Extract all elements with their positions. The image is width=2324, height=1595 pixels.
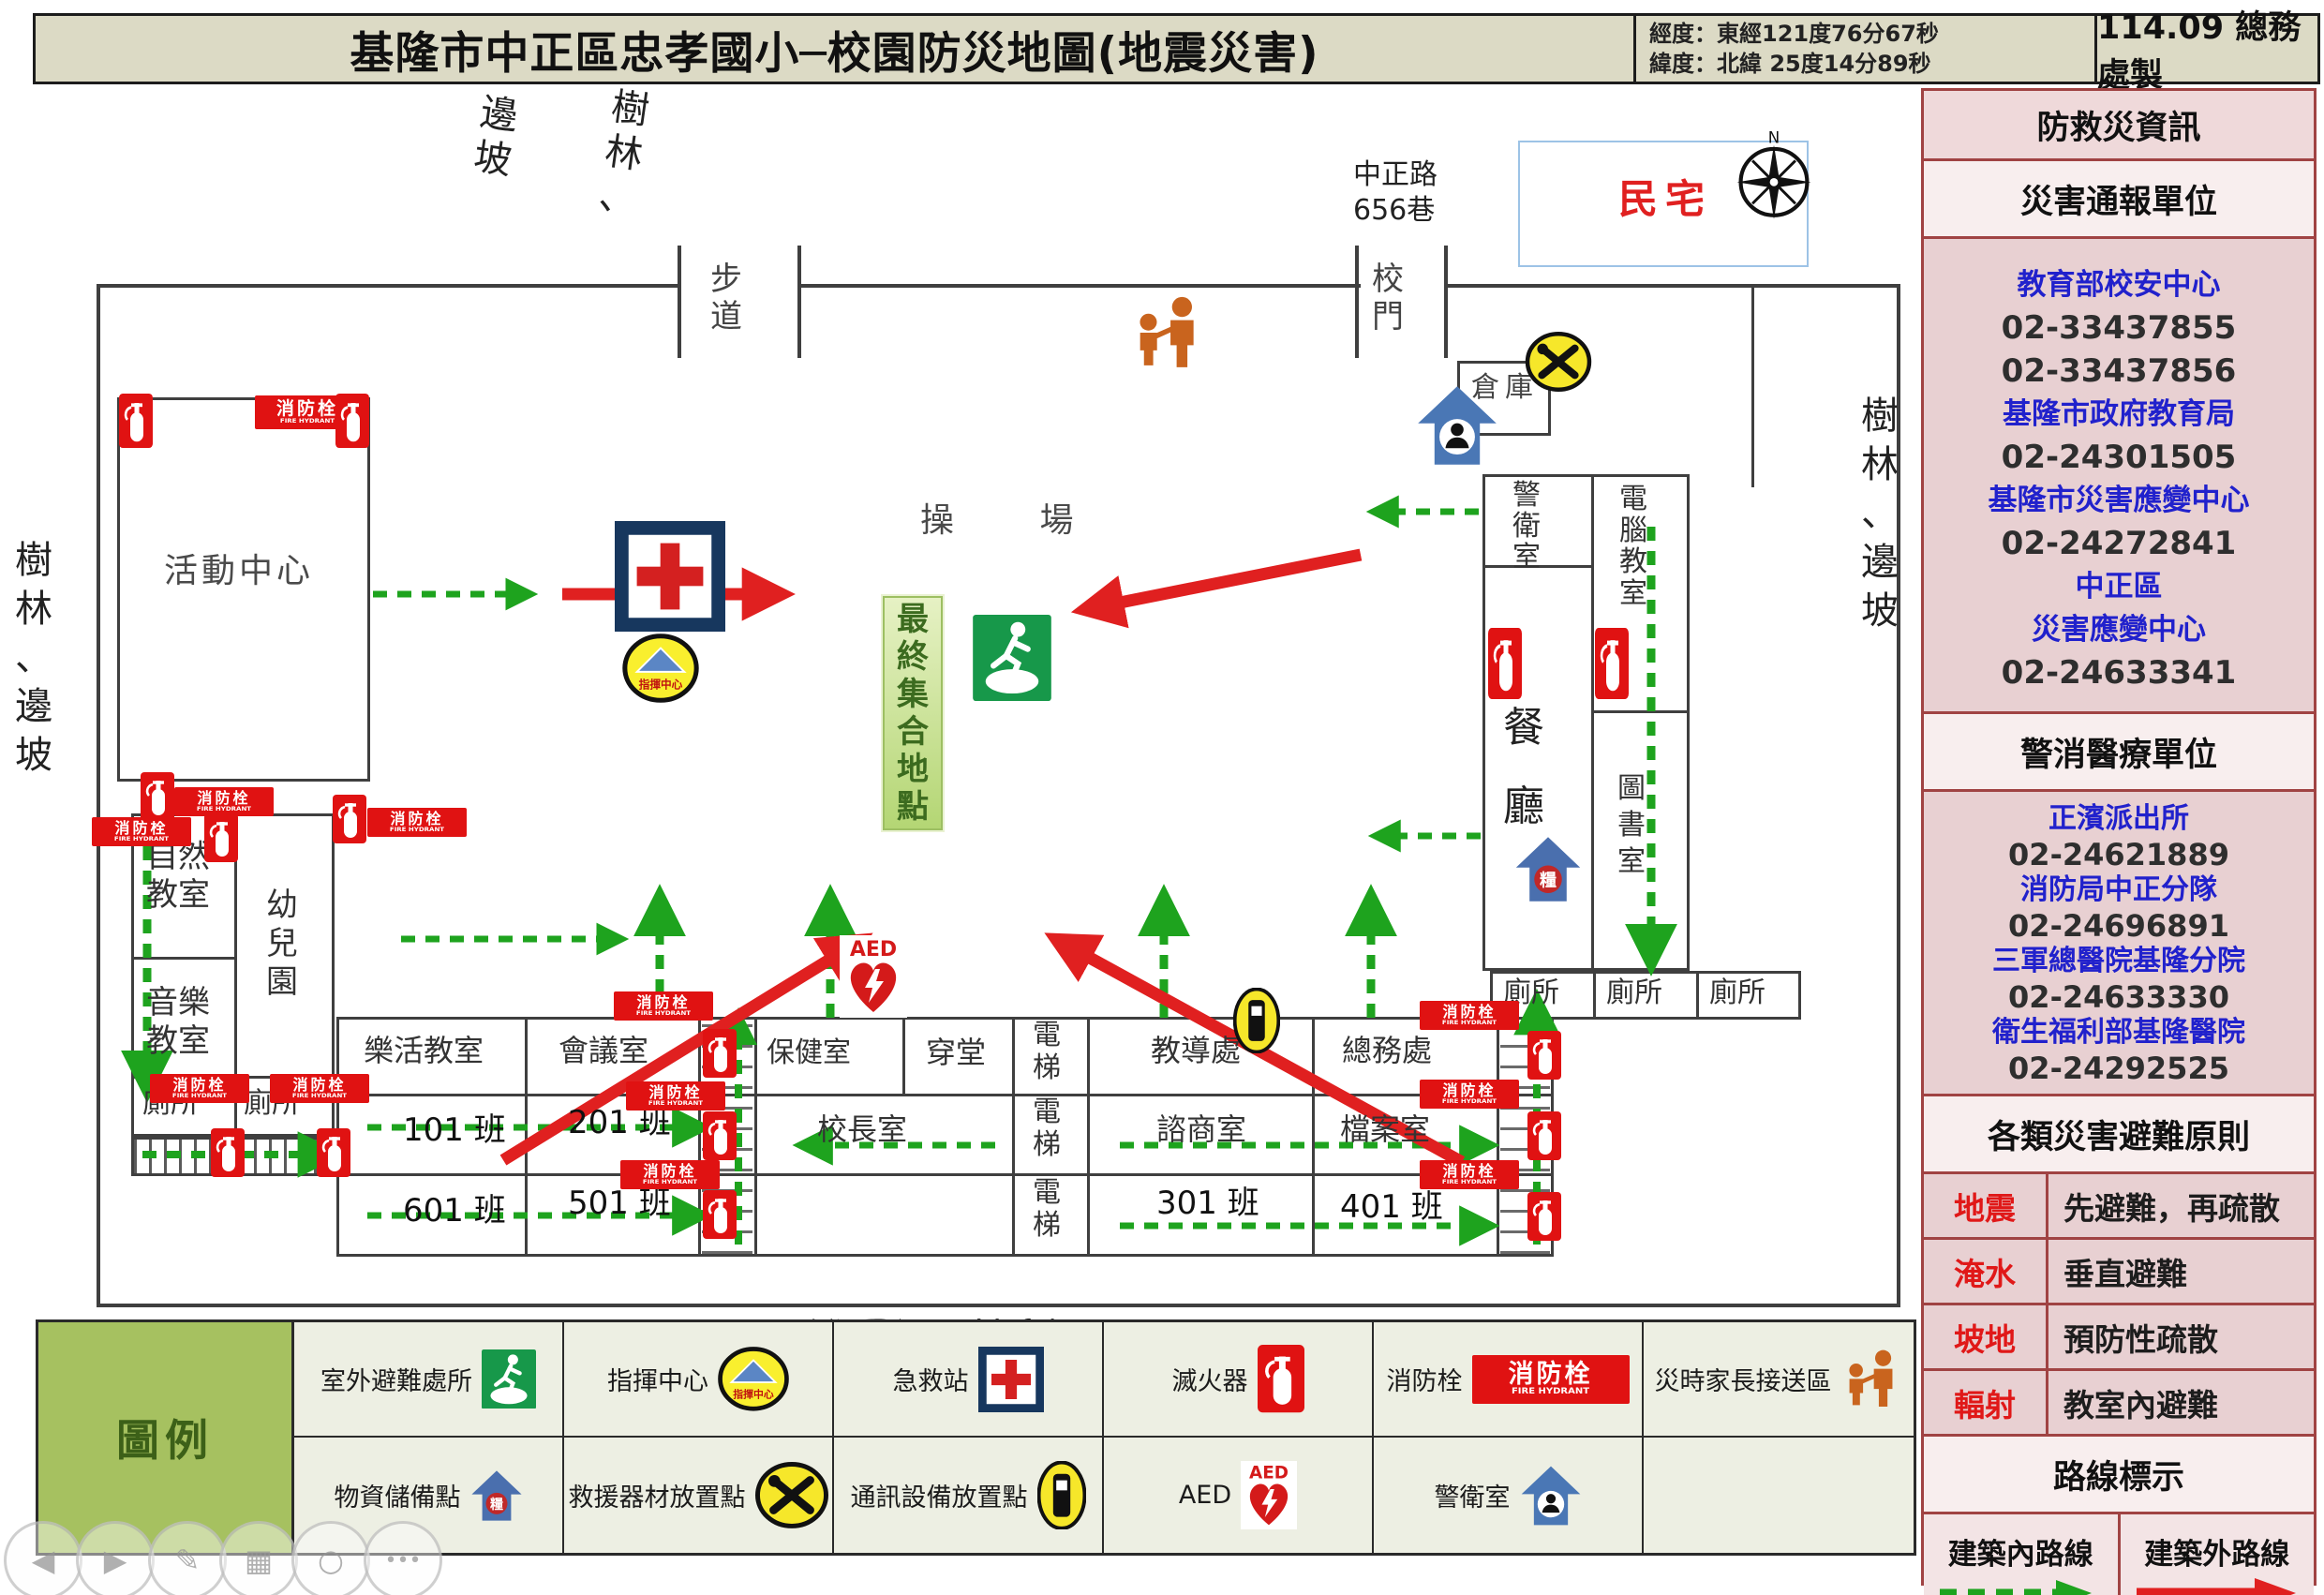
svg-text:糧: 糧	[490, 1497, 503, 1513]
command-center-icon: 指揮中心	[620, 634, 701, 703]
fire-extinguisher-icon	[1527, 1031, 1561, 1080]
legend-grid: 室外避難處所指揮中心指揮中心急救站滅火器消防栓消防栓FIRE HYDRANT災時…	[294, 1322, 1914, 1553]
parentchild-legend-icon	[1841, 1350, 1903, 1409]
fire-extinguisher-icon	[335, 394, 369, 448]
legend-label: 救援器材放置點	[569, 1477, 746, 1513]
map-label: 穿堂	[926, 1035, 986, 1070]
hazard-guideline: 垂直避難	[2048, 1240, 2314, 1303]
hydrant-sign-cn: 消防栓	[172, 1078, 226, 1093]
map-label: 幼 兒 園	[266, 887, 298, 1001]
indoor-route-arrow	[1936, 1576, 2105, 1595]
svg-text:N: N	[1768, 129, 1780, 147]
wall-line	[678, 246, 681, 358]
fire-hydrant-sign: 消防栓FIRE HYDRANT	[620, 1160, 720, 1189]
legend-item: 滅火器	[1104, 1322, 1374, 1438]
fire-extinguisher-icon	[703, 1111, 737, 1160]
map-label: 校 門	[1372, 261, 1404, 335]
legend-label: 通訊設備放置點	[851, 1477, 1028, 1513]
wall-line	[97, 284, 100, 1307]
phone-legend-icon	[1037, 1462, 1086, 1529]
fire-extinguisher-icon	[1595, 628, 1629, 699]
fire-hydrant-sign: 消防栓FIRE HYDRANT	[1472, 1355, 1630, 1404]
contact-name: 正濱派出所	[1924, 801, 2314, 837]
fire-extinguisher-icon	[141, 772, 174, 821]
more-options-button[interactable]: •••	[364, 1521, 442, 1595]
fire-hydrant-sign: 消防栓FIRE HYDRANT	[1420, 1080, 1519, 1109]
first-aid-station-icon	[615, 521, 725, 632]
hydrant-sign-en: FIRE HYDRANT	[648, 1100, 703, 1106]
fire-extinguisher-icon	[703, 1029, 737, 1078]
fire-extinguisher-icon	[317, 1128, 350, 1177]
legend-item: 室外避難處所	[294, 1322, 564, 1438]
hazard-rule-row: 地震先避難，再疏散	[1924, 1174, 2314, 1240]
contact-phone: 02-24292525	[1924, 1051, 2314, 1086]
map-label: 活動中心	[164, 551, 314, 591]
hydrant-sign-en: FIRE HYDRANT	[1442, 1020, 1497, 1025]
slide-overview-button[interactable]: ▦	[219, 1521, 298, 1595]
hazard-guideline: 教室內避難	[2048, 1371, 2314, 1434]
fire-hydrant-sign: 消防栓FIRE HYDRANT	[1420, 1160, 1519, 1189]
legend-item: 通訊設備放置點	[834, 1438, 1104, 1553]
hydrant-sign-cn: 消防栓	[648, 1085, 702, 1100]
map-label: 中正路 656巷	[1353, 157, 1438, 228]
legend-label: 急救站	[893, 1361, 969, 1397]
map-label: 樂活教室	[364, 1033, 484, 1068]
hydrant-sign-en: FIRE HYDRANT	[172, 1093, 227, 1098]
contact-phone: 02-33437856	[1924, 350, 2314, 393]
svg-text:AED: AED	[1249, 1463, 1289, 1483]
legend-label: AED	[1179, 1481, 1231, 1510]
contact-name: 消防局中正分隊	[1924, 872, 2314, 908]
hydrant-sign-en: FIRE HYDRANT	[197, 806, 251, 812]
wall-line	[98, 284, 679, 288]
hydrant-sign-cn: 消防栓	[197, 791, 250, 806]
legend-item: 消防栓消防栓FIRE HYDRANT	[1374, 1322, 1644, 1438]
map-label: 101 班	[403, 1111, 506, 1150]
next-slide-button[interactable]: ▶	[76, 1521, 155, 1595]
contact-phone: 02-24272841	[1924, 522, 2314, 565]
contact-name: 衛生福利部基隆醫院	[1924, 1015, 2314, 1051]
legend-item	[1644, 1438, 1914, 1553]
sidebar-body: 災害通報單位教育部校安中心02-3343785502-33437856基隆市政府…	[1924, 161, 2314, 1595]
fire-extinguisher-icon	[211, 1128, 245, 1177]
contact-name: 三軍總醫院基隆分院	[1924, 944, 2314, 979]
fire-hydrant-sign: 消防栓FIRE HYDRANT	[626, 1081, 725, 1111]
sidebar-section-header: 警消醫療單位	[1924, 714, 2314, 792]
hydrant-sign-cn: 消防栓	[1509, 1362, 1593, 1387]
fire-hydrant-sign: 消防栓FIRE HYDRANT	[1420, 1001, 1519, 1030]
map-label: 警 衛 室	[1512, 480, 1541, 573]
contact-list: 教育部校安中心02-3343785502-33437856基隆市政府教育局02-…	[1924, 239, 2314, 714]
map-label: 電 梯	[1033, 1177, 1061, 1242]
legend-item: 急救站	[834, 1322, 1104, 1438]
fire-hydrant-sign: 消防栓FIRE HYDRANT	[614, 991, 713, 1021]
fire-extinguisher-icon	[1488, 628, 1522, 699]
parent-pickup-icon	[1130, 296, 1207, 369]
map-label: 自然 教室	[146, 838, 210, 915]
supply-depot-icon: 糧	[1514, 825, 1582, 914]
map-label: 會議室	[559, 1033, 648, 1068]
fire-extinguisher-icon	[333, 795, 366, 843]
legend-title: 圖例	[38, 1322, 294, 1553]
map-label: 401 班	[1340, 1188, 1443, 1227]
hazard-type: 輻射	[1924, 1371, 2048, 1434]
legend-item: 救援器材放置點	[564, 1438, 834, 1553]
fire-hydrant-sign: 消防栓FIRE HYDRANT	[270, 1074, 369, 1103]
legend-label: 警衛室	[1435, 1477, 1511, 1513]
contact-phone: 02-33437855	[1924, 306, 2314, 350]
supplyhouse-legend-icon: 糧	[470, 1462, 523, 1529]
map-label: 廁所	[1606, 976, 1662, 1010]
legend-label: 指揮中心	[607, 1361, 708, 1397]
sidebar-title: 防救災資訊	[1924, 91, 2314, 161]
wall-line	[801, 284, 1361, 288]
route-legend-item: 建築外路線	[2118, 1514, 2315, 1595]
wall-line	[1355, 246, 1359, 358]
svg-text:糧: 糧	[1540, 871, 1557, 891]
route-legend-row: 建築內路線建築外路線	[1924, 1514, 2314, 1595]
hydrant-sign-cn: 消防栓	[643, 1164, 696, 1179]
rescue-equipment-icon	[1524, 332, 1593, 392]
hazard-rule-row: 坡地預防性疏散	[1924, 1305, 2314, 1371]
hydrant-sign-cn: 消防栓	[390, 812, 443, 827]
fire-extinguisher-icon	[1527, 1192, 1561, 1241]
map-label: 檔案室	[1340, 1111, 1430, 1147]
legend-label: 消防栓	[1387, 1361, 1463, 1397]
map-label: 教導處	[1151, 1033, 1241, 1068]
contact-phone: 02-24301505	[1924, 436, 2314, 479]
map-label: 校長室	[817, 1111, 907, 1147]
hydrant-sign-en: FIRE HYDRANT	[643, 1179, 697, 1185]
map-label: 餐 廳	[1503, 689, 1544, 845]
zoom-button[interactable]: ○	[291, 1521, 370, 1595]
hydrant-sign-cn: 消防栓	[292, 1078, 346, 1093]
contact-phone: 02-24696891	[1924, 908, 2314, 944]
aed-legend-icon: AED	[1241, 1462, 1297, 1529]
contact-phone: 02-24633341	[1924, 651, 2314, 694]
hydrant-sign-cn: 消防栓	[1442, 1164, 1496, 1179]
hydrant-sign-en: FIRE HYDRANT	[114, 836, 169, 842]
map-legend: 圖例 室外避難處所指揮中心指揮中心急救站滅火器消防栓消防栓FIRE HYDRAN…	[36, 1319, 1916, 1556]
sidebar-section-header: 路線標示	[1924, 1437, 2314, 1514]
hazard-rule-row: 輻射教室內避難	[1924, 1371, 2314, 1437]
legend-item: 指揮中心指揮中心	[564, 1322, 834, 1438]
wall-line	[1751, 286, 1754, 487]
sidebar-section-header: 各類災害避難原則	[1924, 1096, 2314, 1174]
contact-name: 教育部校安中心	[1924, 263, 2314, 306]
map-label: 步 道	[710, 261, 742, 335]
map-label: 樹 林 、	[596, 84, 652, 223]
command-legend-icon: 指揮中心	[718, 1349, 789, 1410]
outdoor-refuge-icon	[973, 615, 1051, 701]
contact-phone: 02-24633330	[1924, 979, 2314, 1015]
map-label: 電 腦 教 室	[1619, 484, 1647, 609]
hydrant-sign-cn: 消防栓	[1442, 1083, 1496, 1098]
map-label: 501 班	[568, 1185, 671, 1223]
legend-item: 災時家長接送區	[1644, 1322, 1914, 1438]
fire-extinguisher-icon	[1527, 1111, 1561, 1160]
contact-name: 中正區	[1924, 565, 2314, 608]
map-label: 樹 林 、 邊 坡	[1861, 392, 1899, 635]
firstaid-legend-icon	[978, 1347, 1044, 1412]
hydrant-sign-en: FIRE HYDRANT	[636, 1010, 691, 1016]
pen-annotate-button[interactable]: ✎	[148, 1521, 227, 1595]
hydrant-sign-en: FIRE HYDRANT	[1442, 1179, 1497, 1185]
map-label: 電 梯	[1033, 1096, 1061, 1161]
map-label: 民宅	[1618, 176, 1712, 223]
hydrant-sign-cn: 消防栓	[114, 821, 168, 836]
fire-extinguisher-icon	[204, 813, 238, 862]
svg-text:指揮中心: 指揮中心	[639, 678, 683, 691]
map-label: 邊 坡	[471, 90, 521, 185]
route-legend-label: 建築外路線	[2144, 1530, 2289, 1573]
hazard-guideline: 預防性疏散	[2048, 1305, 2314, 1368]
fire-hydrant-sign: 消防栓FIRE HYDRANT	[174, 787, 274, 816]
outdoor-route-arrow	[2133, 1576, 2302, 1595]
info-sidebar: 防救災資訊 災害通報單位教育部校安中心02-3343785502-3343785…	[1921, 88, 2317, 1586]
fire-extinguisher-icon	[703, 1190, 737, 1239]
map-label: 圖 書 室	[1617, 770, 1646, 880]
hydrant-sign-en: FIRE HYDRANT	[390, 827, 444, 832]
map-label: 樹 林 、 邊 坡	[15, 536, 52, 780]
hydrant-sign-en: FIRE HYDRANT	[1512, 1388, 1589, 1396]
map-label: 301 班	[1156, 1185, 1259, 1223]
fire-hydrant-sign: 消防栓FIRE HYDRANT	[367, 808, 467, 837]
disaster-map-slide: 基隆市中正區忠孝國小─校園防災地圖(地震災害) 經度：東經121度76分67秒 …	[0, 0, 2324, 1595]
legend-label: 滅火器	[1172, 1361, 1248, 1397]
legend-item: 警衛室	[1374, 1438, 1644, 1553]
hazard-rule-row: 淹水垂直避難	[1924, 1240, 2314, 1305]
legend-label: 物資儲備點	[335, 1477, 461, 1513]
hydrant-sign-cn: 消防栓	[1442, 1005, 1496, 1020]
comms-equipment-icon	[1233, 988, 1280, 1053]
hazard-guideline: 先避難，再疏散	[2048, 1174, 2314, 1237]
guardhouse-legend-icon	[1520, 1466, 1582, 1526]
hazard-type: 地震	[1924, 1174, 2048, 1237]
sidebar-section-header: 災害通報單位	[1924, 161, 2314, 239]
map-label: 保健室	[767, 1036, 851, 1070]
route-legend-item: 建築內路線	[1924, 1514, 2118, 1595]
wall-line	[1444, 246, 1448, 358]
hazard-type: 淹水	[1924, 1240, 2048, 1303]
fire-hydrant-sign: 消防栓FIRE HYDRANT	[92, 817, 191, 846]
hydrant-sign-en: FIRE HYDRANT	[280, 418, 335, 424]
aed-icon: AED	[838, 935, 909, 1018]
fire-extinguisher-icon	[119, 394, 153, 448]
wall-line	[797, 246, 801, 358]
route-legend-label: 建築內路線	[1948, 1530, 2093, 1573]
hydrant-sign-en: FIRE HYDRANT	[292, 1093, 347, 1098]
hydrant-sign-cn: 消防栓	[276, 400, 338, 418]
hydrant-sign-en: FIRE HYDRANT	[1442, 1098, 1497, 1104]
svg-text:指揮中心: 指揮中心	[733, 1387, 774, 1400]
map-label: 電 梯	[1033, 1020, 1061, 1084]
hydrant-sign-cn: 消防栓	[636, 995, 690, 1010]
map-label: 廁所	[1709, 976, 1765, 1010]
guard-room-icon	[1415, 384, 1499, 467]
map-label: 操 場	[920, 500, 1110, 541]
contact-name: 災害應變中心	[1924, 608, 2314, 651]
compass-icon: N	[1727, 127, 1821, 221]
contact-list: 正濱派出所02-24621889消防局中正分隊02-24696891三軍總醫院基…	[1924, 792, 2314, 1096]
map-label: 601 班	[403, 1192, 506, 1230]
wall-line	[97, 1304, 1900, 1307]
legend-item: AEDAED	[1104, 1438, 1374, 1553]
legend-label: 室外避難處所	[320, 1361, 472, 1397]
hazard-type: 坡地	[1924, 1305, 2048, 1368]
contact-name: 基隆市災害應變中心	[1924, 479, 2314, 522]
extinguisher-legend-icon	[1258, 1346, 1304, 1413]
contact-phone: 02-24621889	[1924, 837, 2314, 872]
wall-line	[1446, 284, 1900, 288]
hydrant-legend-icon: 消防栓FIRE HYDRANT	[1472, 1355, 1630, 1404]
map-label: 總務處	[1342, 1033, 1432, 1068]
svg-text:AED: AED	[850, 938, 897, 961]
tools-legend-icon	[755, 1463, 828, 1528]
runman-legend-icon	[482, 1349, 536, 1409]
contact-name: 基隆市政府教育局	[1924, 393, 2314, 436]
fire-hydrant-sign: 消防栓FIRE HYDRANT	[150, 1074, 249, 1103]
legend-label: 災時家長接送區	[1655, 1361, 1832, 1397]
map-label: 音樂 教室	[146, 984, 210, 1061]
prev-slide-button[interactable]: ◀	[4, 1521, 82, 1595]
map-label: 諮商室	[1156, 1111, 1246, 1147]
final-assembly-point-sign: 最 終 集 合 地 點	[883, 596, 943, 830]
